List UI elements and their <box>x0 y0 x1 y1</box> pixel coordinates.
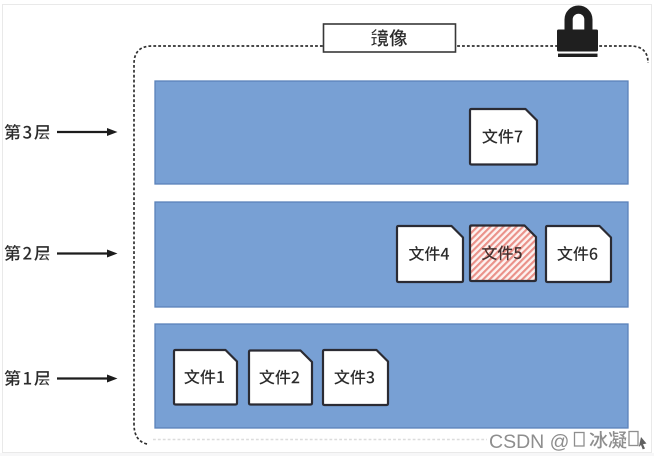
svg-text:CSDN @: CSDN @ <box>489 431 569 453</box>
